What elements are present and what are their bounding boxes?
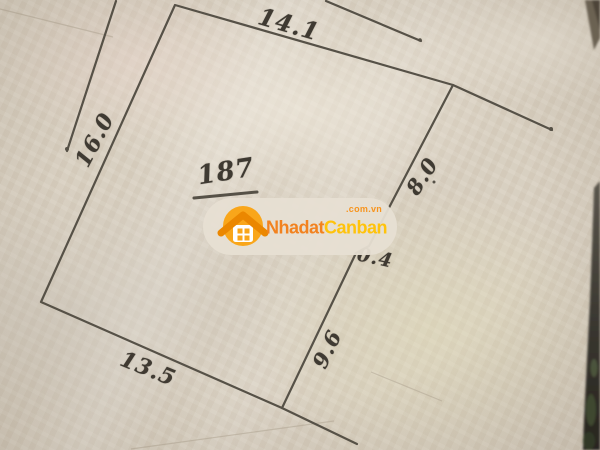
paper-crease: [131, 421, 334, 449]
paper-crease: [0, 9, 113, 37]
paper-crease: [371, 372, 442, 401]
land-plot-photo: 14.1 16.0 8.0 0.4 9.6 13.5 187 NhadatCan…: [0, 0, 600, 450]
boundary-extension-top-right: [453, 85, 552, 130]
watermark-brand: NhadatCanban: [266, 217, 387, 238]
watermark-brand-part1: Nhadat: [266, 217, 324, 237]
photo-edge-shadow: [583, 0, 600, 450]
dimension-line-top: [326, 1, 421, 41]
ink-dot: [549, 127, 553, 131]
ink-dot: [65, 147, 69, 151]
watermark-brand-part2: Canban: [324, 217, 387, 237]
house-icon: [217, 202, 269, 248]
ink-dot: [418, 38, 422, 42]
watermark-pill: NhadatCanban .com.vn: [203, 198, 397, 255]
watermark-domain: .com.vn: [346, 204, 382, 214]
boundary-extension-bottom: [282, 408, 357, 444]
